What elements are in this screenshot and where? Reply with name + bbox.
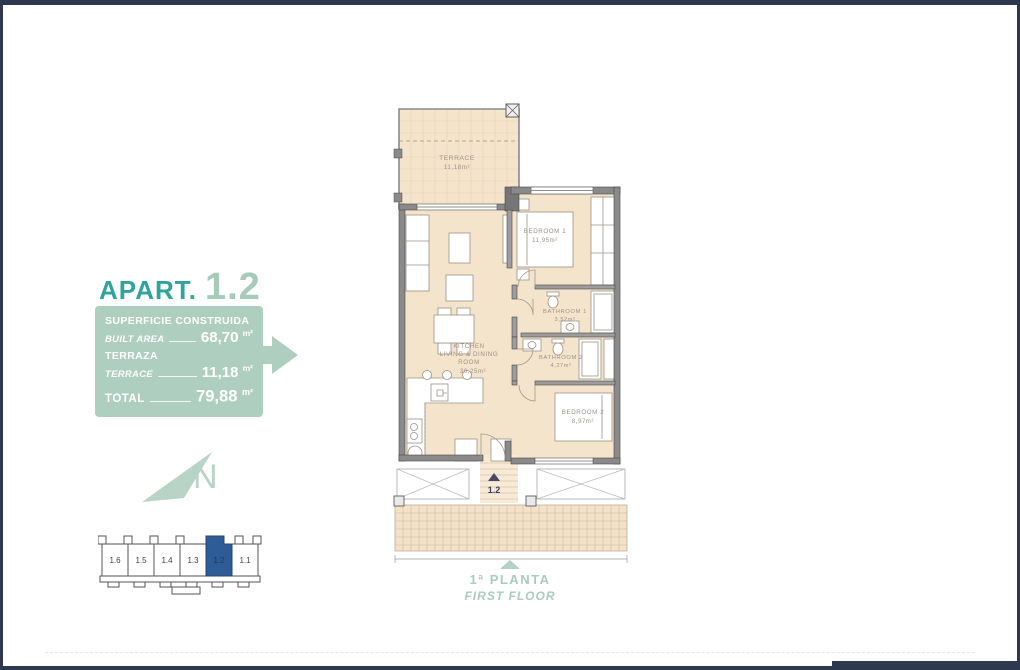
compass-north-letter: N (193, 458, 218, 496)
terrace-label-en: TERRACE (105, 369, 153, 380)
bedroom2-area: 8,97m² (572, 419, 594, 425)
floor-plan: 1.2 TERRACE 11,18m² BEDROOM 1 11,95m² BA… (393, 103, 633, 565)
total-unit: m² (242, 387, 253, 397)
kitchen-area: 30,25m² (460, 369, 486, 375)
pointer-arrow-icon (256, 330, 302, 380)
built-area-row: BUILT AREA 68,70 m² (105, 328, 253, 346)
footer-divider (45, 652, 975, 653)
kitchen-line1: KITCHEN (453, 343, 484, 350)
kitchen-line2: LIVING & DINING (440, 351, 499, 358)
key-plan-unit-label: 1.4 (161, 556, 173, 565)
terrace-value: 11,18 (202, 364, 239, 381)
bedroom1-name: BEDROOM 1 (524, 228, 567, 235)
terrace-row: TERRACE 11,18 m² (105, 363, 253, 381)
built-area-label-en: BUILT AREA (105, 334, 164, 345)
terrace-name: TERRACE (439, 155, 475, 162)
leader-line (158, 375, 197, 377)
kitchen-line3: ROOM (458, 359, 480, 366)
bathroom2-area: 4,27m² (550, 363, 571, 369)
total-label: TOTAL (105, 393, 145, 405)
key-plan-unit-label: 1.3 (187, 556, 199, 565)
terrace-area: 11,18m² (444, 164, 470, 171)
surface-info-box: SUPERFICIE CONSTRUIDA BUILT AREA 68,70 m… (95, 306, 263, 417)
built-area-label-es: SUPERFICIE CONSTRUIDA (105, 315, 253, 327)
terrace-unit: m² (243, 363, 253, 373)
built-area-value: 68,70 (201, 329, 239, 346)
floor-label-en: FIRST FLOOR (430, 589, 590, 603)
entry-unit-label: 1.2 (488, 485, 501, 495)
bedroom2-name: BEDROOM 2 (562, 409, 605, 416)
key-plan-unit-label-highlighted: 1.2 (213, 556, 225, 565)
bathroom2-name: BATHROOM 2 (539, 355, 583, 361)
building-key-plan: 1.6 1.5 1.4 1.3 1.2 1.1 (98, 530, 268, 598)
key-plan-unit-label: 1.5 (135, 556, 147, 565)
bathroom1-name: BATHROOM 1 (543, 309, 587, 315)
apartment-title-word: APART. (99, 275, 197, 306)
floor-label-es: 1ª PLANTA (430, 572, 590, 587)
bedroom1-area: 11,95m² (532, 238, 558, 244)
built-area-unit: m² (243, 328, 253, 338)
apartment-title-number: 1.2 (205, 266, 261, 309)
leader-line (169, 340, 195, 342)
bottom-accent-bar (832, 661, 1017, 666)
total-row: TOTAL 79,88 m² (105, 387, 253, 407)
bathroom1-area: 3,52m² (554, 317, 575, 323)
key-plan-unit-label: 1.1 (239, 556, 251, 565)
caption-triangle-icon (500, 560, 520, 569)
north-compass-icon: N (136, 446, 222, 508)
apartment-title: APART. 1.2 (99, 266, 261, 309)
total-value: 79,88 (196, 388, 237, 406)
leader-line (150, 400, 191, 402)
terrace-label-es: TERRAZA (105, 350, 253, 362)
floor-caption: 1ª PLANTA FIRST FLOOR (430, 560, 590, 603)
key-plan-unit-label: 1.6 (109, 556, 121, 565)
